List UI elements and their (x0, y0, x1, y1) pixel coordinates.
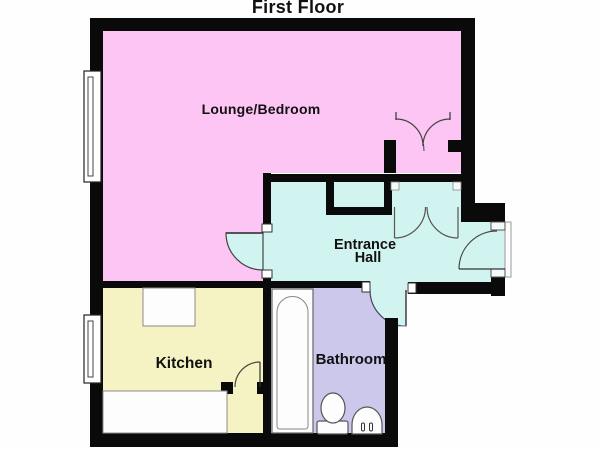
svg-text:First Floor: First Floor (252, 0, 344, 17)
svg-text:Kitchen: Kitchen (156, 355, 213, 372)
svg-text:Lounge/Bedroom: Lounge/Bedroom (202, 101, 321, 117)
svg-text:Hall: Hall (355, 250, 382, 266)
svg-text:Bathroom: Bathroom (316, 351, 387, 368)
